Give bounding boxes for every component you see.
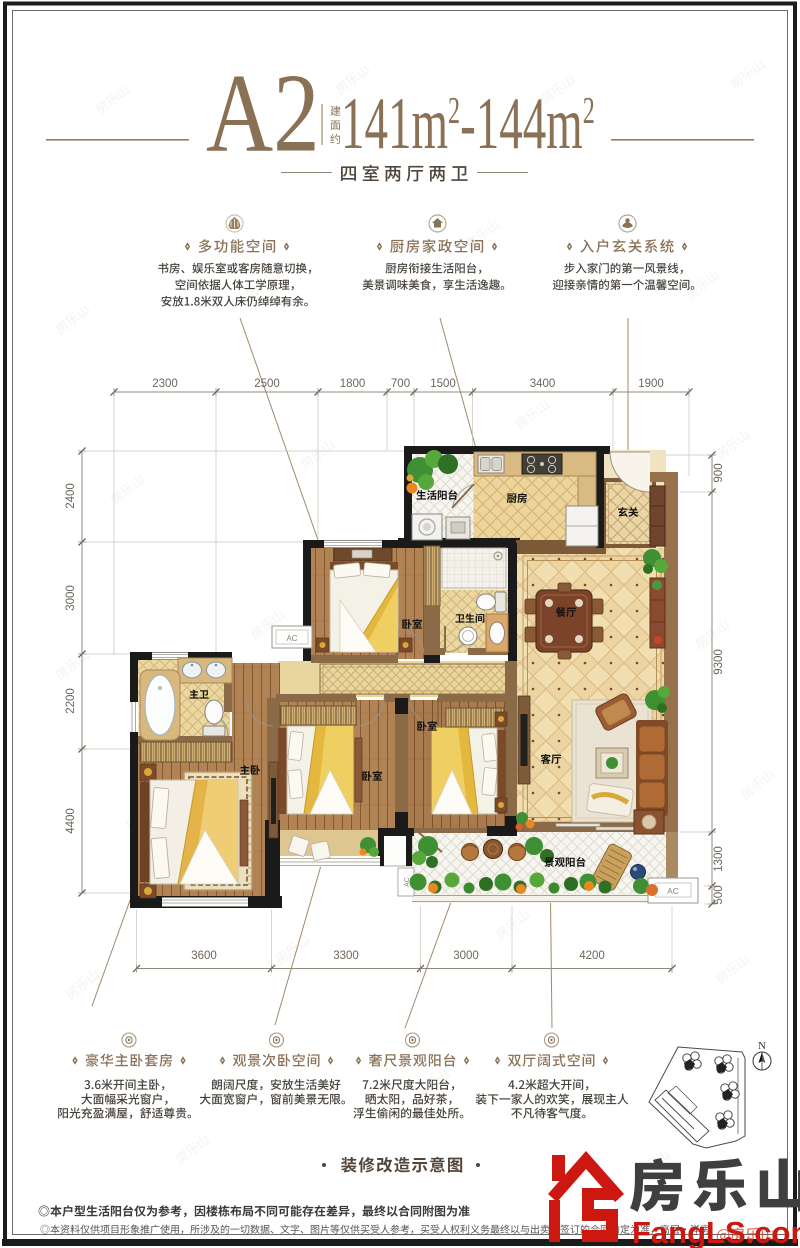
svg-text:141m2-144m2: 141m2-144m2: [341, 84, 595, 165]
svg-text:2400: 2400: [65, 483, 77, 509]
svg-text:900: 900: [713, 463, 725, 482]
svg-text:FangLS.com: FangLS.com: [632, 1215, 800, 1248]
svg-text:3000: 3000: [453, 950, 479, 962]
svg-text:3000: 3000: [65, 585, 77, 611]
svg-text:9300: 9300: [713, 649, 725, 675]
svg-text:3600: 3600: [191, 950, 217, 962]
svg-text:2300: 2300: [152, 378, 178, 390]
svg-text:AC: AC: [667, 886, 679, 896]
svg-text:500: 500: [713, 885, 725, 904]
svg-text:4400: 4400: [65, 808, 77, 834]
svg-text:4200: 4200: [579, 950, 605, 962]
svg-text:1300: 1300: [713, 846, 725, 872]
svg-text:N: N: [758, 1040, 766, 1052]
svg-text:1500: 1500: [430, 378, 456, 390]
svg-text:3400: 3400: [530, 378, 556, 390]
svg-text:700: 700: [391, 378, 410, 390]
svg-text:1900: 1900: [638, 378, 664, 390]
svg-text:2200: 2200: [65, 688, 77, 714]
svg-text:3300: 3300: [333, 950, 359, 962]
svg-text:AC: AC: [286, 634, 297, 643]
svg-text:1800: 1800: [340, 378, 366, 390]
svg-text:A2: A2: [206, 51, 320, 175]
svg-text:2500: 2500: [254, 378, 280, 390]
